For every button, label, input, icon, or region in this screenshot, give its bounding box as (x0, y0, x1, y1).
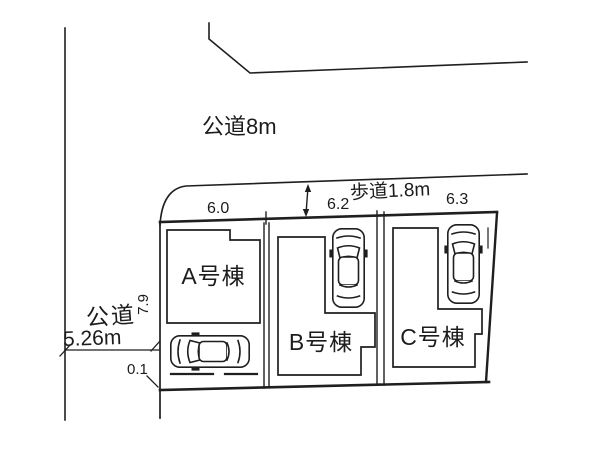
offset-leader-line (147, 376, 158, 387)
car-icon (444, 225, 482, 303)
lots-south-boundary-line (160, 382, 489, 390)
car-icon (329, 229, 367, 307)
lot-a-depth-dimension: 7.9 (136, 294, 151, 315)
lot-b-label: B号棟 (278, 331, 364, 354)
lot-a-label: A号棟 (167, 265, 260, 288)
car-icon (171, 332, 249, 370)
lot-a-frontage-dimension: 6.0 (207, 201, 229, 217)
lot-c-label: C号棟 (390, 326, 476, 349)
site-plan-figure: 公道8m 歩道1.8m 6.0 6.2 6.3 公道 5.26m 7.9 0.1… (0, 0, 600, 450)
lot-c-frontage-dimension: 6.3 (446, 192, 468, 208)
sidewalk-label: 歩道1.8m (350, 180, 431, 202)
lot-b-frontage-dimension: 6.2 (327, 197, 349, 213)
west-road-width-label: 5.26m (63, 327, 122, 350)
site-plan-drawing (0, 0, 600, 450)
north-road-label: 公道8m (202, 116, 277, 138)
north-road-boundary-line (209, 23, 527, 73)
lot-bc-boundary-line (377, 211, 384, 385)
sidewalk-width-arrow (303, 184, 311, 217)
corner-offset-dimension: 0.1 (127, 362, 148, 377)
lot-ab-boundary-line (264, 212, 269, 388)
